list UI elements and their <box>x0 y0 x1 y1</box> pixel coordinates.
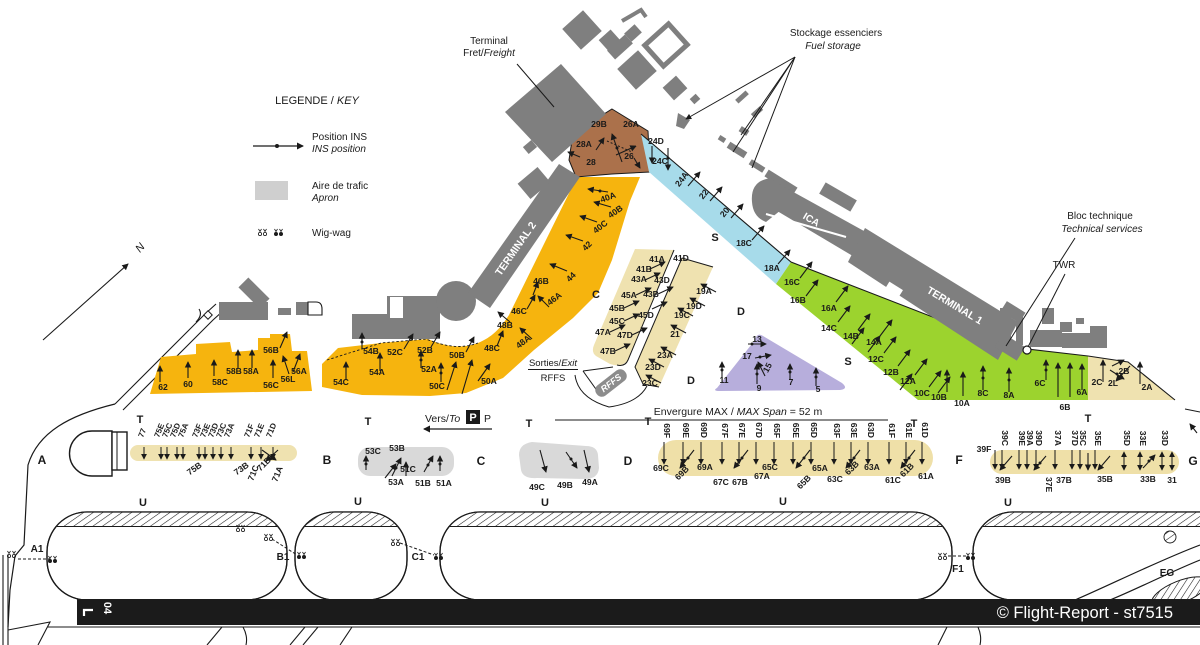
svg-text:35B: 35B <box>1097 474 1113 484</box>
svg-text:69D: 69D <box>699 422 709 438</box>
svg-text:35D: 35D <box>1122 430 1132 446</box>
svg-text:10B: 10B <box>931 392 947 402</box>
svg-text:58A: 58A <box>243 366 259 376</box>
svg-text:67C: 67C <box>713 477 729 487</box>
svg-text:21: 21 <box>670 329 680 339</box>
svg-text:LEGENDE / KEY: LEGENDE / KEY <box>275 95 359 107</box>
svg-text:56C: 56C <box>263 380 279 390</box>
svg-text:53C: 53C <box>365 446 381 456</box>
svg-text:61E: 61E <box>904 423 914 439</box>
svg-text:T: T <box>526 418 533 430</box>
svg-text:45C: 45C <box>609 316 625 326</box>
svg-text:51A: 51A <box>436 478 452 488</box>
svg-text:39C: 39C <box>1000 430 1010 446</box>
svg-text:46C: 46C <box>511 306 527 316</box>
svg-text:18A: 18A <box>764 263 780 273</box>
svg-text:63C: 63C <box>827 474 843 484</box>
svg-text:52A: 52A <box>421 364 437 374</box>
svg-text:41D: 41D <box>673 253 689 263</box>
svg-text:S: S <box>711 232 718 244</box>
svg-text:T: T <box>365 416 372 428</box>
svg-text:2L: 2L <box>1108 378 1118 388</box>
svg-text:58C: 58C <box>212 377 228 387</box>
svg-text:49B: 49B <box>557 480 573 490</box>
svg-text:37E: 37E <box>1044 477 1054 493</box>
svg-text:24D: 24D <box>648 136 664 146</box>
svg-text:67B: 67B <box>732 477 748 487</box>
svg-text:T: T <box>645 416 652 428</box>
svg-text:65D: 65D <box>809 422 819 438</box>
svg-text:S: S <box>844 356 851 368</box>
svg-text:Stockage essenciers: Stockage essenciers <box>790 28 882 39</box>
svg-text:33D: 33D <box>1160 430 1170 446</box>
svg-text:Fret/Freight: Fret/Freight <box>463 48 516 59</box>
svg-text:58B: 58B <box>226 366 242 376</box>
svg-text:47D: 47D <box>617 330 633 340</box>
svg-text:48B: 48B <box>497 320 513 330</box>
svg-text:61A: 61A <box>918 471 934 481</box>
svg-text:Vers/To: Vers/To <box>425 413 460 425</box>
svg-text:U: U <box>541 497 549 509</box>
svg-text:24C: 24C <box>652 156 668 166</box>
svg-text:T: T <box>137 414 144 426</box>
svg-text:12C: 12C <box>868 354 884 364</box>
svg-text:61D: 61D <box>920 422 930 438</box>
svg-text:62: 62 <box>158 382 168 392</box>
svg-text:14A: 14A <box>866 337 882 347</box>
svg-text:28A: 28A <box>576 139 592 149</box>
svg-text:61F: 61F <box>887 423 897 438</box>
svg-text:B: B <box>323 453 332 467</box>
svg-text:12A: 12A <box>900 376 916 386</box>
svg-text:11: 11 <box>719 375 728 385</box>
svg-text:39D: 39D <box>1034 430 1044 446</box>
svg-text:RFFS: RFFS <box>541 373 566 384</box>
svg-text:6B: 6B <box>1060 402 1071 412</box>
svg-text:D: D <box>624 454 633 468</box>
svg-text:45B: 45B <box>609 303 625 313</box>
svg-text:52C: 52C <box>387 347 403 357</box>
svg-text:9: 9 <box>757 383 762 393</box>
svg-text:51C: 51C <box>400 464 416 474</box>
svg-text:D: D <box>687 375 695 387</box>
svg-text:19A: 19A <box>696 286 712 296</box>
svg-text:33B: 33B <box>1140 474 1156 484</box>
svg-text:63D: 63D <box>866 422 876 438</box>
svg-text:43D: 43D <box>654 275 670 285</box>
svg-text:37A: 37A <box>1053 430 1063 446</box>
svg-text:B1: B1 <box>277 552 290 563</box>
svg-text:47B: 47B <box>600 346 616 356</box>
svg-text:29B: 29B <box>591 119 607 129</box>
svg-text:C1: C1 <box>412 552 425 563</box>
svg-text:41A: 41A <box>649 254 665 264</box>
svg-text:39F: 39F <box>977 444 992 454</box>
svg-text:31: 31 <box>1167 475 1177 485</box>
svg-text:65C: 65C <box>762 462 778 472</box>
svg-text:13: 13 <box>752 334 762 344</box>
svg-text:Apron: Apron <box>311 193 339 204</box>
svg-text:F: F <box>955 453 962 467</box>
svg-text:P: P <box>469 412 476 424</box>
svg-text:A: A <box>38 453 47 467</box>
svg-text:P: P <box>484 413 491 425</box>
svg-text:39A: 39A <box>1025 430 1035 446</box>
svg-text:53A: 53A <box>388 477 404 487</box>
svg-text:14B: 14B <box>843 331 859 341</box>
svg-text:65E: 65E <box>791 423 801 439</box>
svg-text:53B: 53B <box>389 443 405 453</box>
svg-text:Envergure MAX / MAX Span = 52: Envergure MAX / MAX Span = 52 m <box>654 406 823 418</box>
svg-text:54B: 54B <box>363 346 379 356</box>
svg-text:54A: 54A <box>369 367 385 377</box>
svg-text:51B: 51B <box>415 478 431 488</box>
svg-text:33E: 33E <box>1138 431 1148 447</box>
svg-text:60: 60 <box>183 379 193 389</box>
svg-text:2C: 2C <box>1092 377 1103 387</box>
svg-text:47A: 47A <box>595 327 611 337</box>
svg-text:65F: 65F <box>772 423 782 438</box>
svg-text:49A: 49A <box>582 477 598 487</box>
svg-text:TWR: TWR <box>1053 260 1076 271</box>
svg-text:10C: 10C <box>914 388 930 398</box>
svg-text:65A: 65A <box>812 463 828 473</box>
svg-text:7: 7 <box>789 377 794 387</box>
svg-text:39B: 39B <box>995 475 1011 485</box>
svg-text:69A: 69A <box>697 462 713 472</box>
svg-text:45D: 45D <box>638 310 654 320</box>
svg-text:43A: 43A <box>631 274 647 284</box>
svg-text:50A: 50A <box>481 376 497 386</box>
svg-text:6C: 6C <box>1035 378 1046 388</box>
svg-text:45A: 45A <box>621 290 637 300</box>
svg-text:Aire de trafic: Aire de trafic <box>312 181 368 192</box>
svg-text:67E: 67E <box>737 423 747 439</box>
svg-text:56B: 56B <box>263 345 279 355</box>
svg-text:C: C <box>477 454 486 468</box>
svg-text:Position INS: Position INS <box>312 132 367 143</box>
svg-text:67F: 67F <box>720 423 730 438</box>
svg-text:2A: 2A <box>1142 382 1153 392</box>
svg-text:67D: 67D <box>754 422 764 438</box>
svg-text:16A: 16A <box>821 303 837 313</box>
svg-text:G: G <box>1188 454 1197 468</box>
svg-text:INS position: INS position <box>312 144 366 155</box>
svg-text:46B: 46B <box>533 276 549 286</box>
svg-text:69F: 69F <box>662 423 672 438</box>
svg-text:37B: 37B <box>1056 475 1072 485</box>
svg-text:U: U <box>354 496 362 508</box>
svg-text:EG: EG <box>1160 568 1175 579</box>
svg-text:16C: 16C <box>784 277 800 287</box>
svg-text:61C: 61C <box>885 475 901 485</box>
svg-text:63E: 63E <box>849 423 859 439</box>
svg-text:67A: 67A <box>754 471 770 481</box>
svg-text:41B: 41B <box>636 264 652 274</box>
svg-text:© Flight-Report - st7515: © Flight-Report - st7515 <box>997 604 1173 622</box>
svg-text:19C: 19C <box>674 310 690 320</box>
svg-text:17: 17 <box>742 351 752 361</box>
svg-text:Fuel storage: Fuel storage <box>805 41 861 52</box>
svg-text:04: 04 <box>101 602 113 615</box>
svg-text:14C: 14C <box>821 323 837 333</box>
svg-text:U: U <box>779 496 787 508</box>
svg-text:50B: 50B <box>449 350 465 360</box>
svg-text:F1: F1 <box>952 564 964 575</box>
svg-text:49C: 49C <box>529 482 545 492</box>
svg-text:T: T <box>1085 413 1092 425</box>
svg-text:26A: 26A <box>623 119 639 129</box>
svg-text:35C: 35C <box>1078 430 1088 446</box>
svg-text:26: 26 <box>624 151 634 161</box>
svg-text:D: D <box>737 306 745 318</box>
svg-text:35E: 35E <box>1093 431 1103 447</box>
svg-text:A1: A1 <box>31 544 44 555</box>
svg-text:63F: 63F <box>832 423 842 438</box>
svg-text:16B: 16B <box>790 295 806 305</box>
svg-text:50C: 50C <box>429 381 445 391</box>
svg-text:Sorties/Exit: Sorties/Exit <box>529 358 577 369</box>
svg-text:U: U <box>139 497 147 509</box>
svg-text:63A: 63A <box>864 462 880 472</box>
svg-text:U: U <box>1004 497 1012 509</box>
svg-text:Wig-wag: Wig-wag <box>312 228 351 239</box>
svg-text:Technical services: Technical services <box>1061 224 1142 235</box>
svg-text:18C: 18C <box>736 238 752 248</box>
svg-text:28: 28 <box>586 157 596 167</box>
svg-text:C: C <box>592 289 600 301</box>
svg-text:12B: 12B <box>883 367 899 377</box>
svg-text:52B: 52B <box>417 345 433 355</box>
svg-text:Terminal: Terminal <box>470 36 508 47</box>
svg-text:10A: 10A <box>954 398 970 408</box>
svg-text:69C: 69C <box>653 463 669 473</box>
svg-text:Bloc technique: Bloc technique <box>1067 211 1133 222</box>
svg-text:69E: 69E <box>681 423 691 439</box>
